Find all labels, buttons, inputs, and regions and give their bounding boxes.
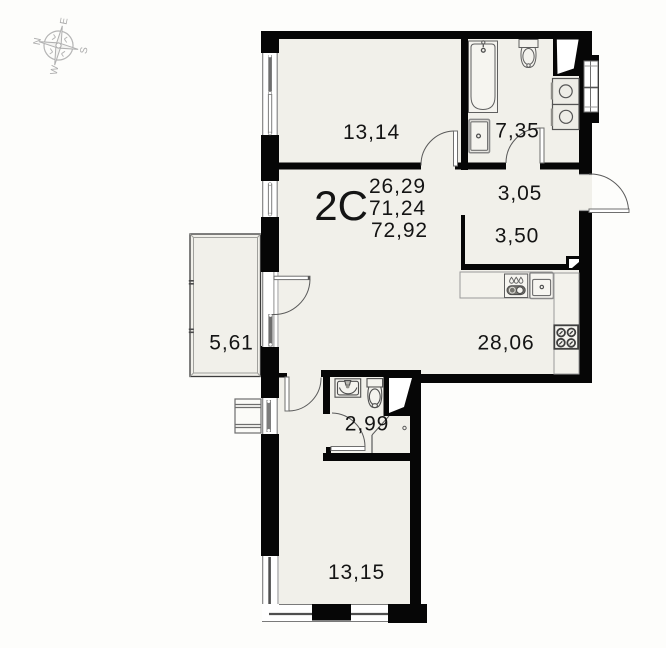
svg-text:71,24: 71,24 xyxy=(369,197,426,220)
svg-text:5,61: 5,61 xyxy=(209,332,253,355)
svg-text:28,06: 28,06 xyxy=(477,332,534,355)
svg-text:72,92: 72,92 xyxy=(371,219,428,242)
svg-text:7,35: 7,35 xyxy=(495,120,539,143)
svg-text:2С: 2С xyxy=(314,182,368,229)
svg-text:2,99: 2,99 xyxy=(345,413,389,436)
svg-text:3,50: 3,50 xyxy=(495,225,539,248)
svg-text:13,15: 13,15 xyxy=(328,561,385,584)
svg-text:3,05: 3,05 xyxy=(498,182,542,205)
svg-text:13,14: 13,14 xyxy=(343,121,400,144)
svg-text:26,29: 26,29 xyxy=(369,175,426,198)
